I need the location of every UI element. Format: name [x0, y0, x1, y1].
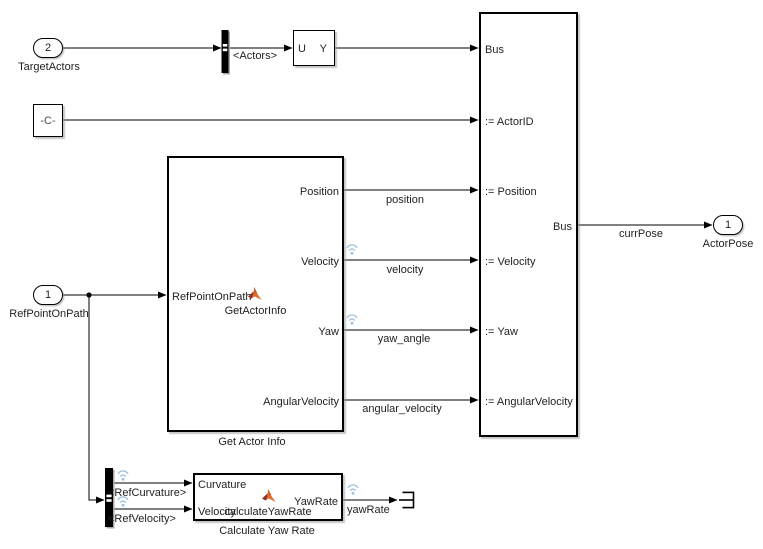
bus-selector-actors[interactable]	[222, 30, 231, 75]
calcyawrate-function-name: calculateYawRate	[195, 506, 341, 518]
busassign-port-velocity: := Velocity	[485, 256, 535, 268]
busassign-port-angularvelocity: := AngularVelocity	[485, 396, 573, 408]
calculate-yaw-rate-caption[interactable]: Calculate Yaw Rate	[219, 526, 315, 537]
getactorinfo-function-name: GetActorInfo	[169, 305, 342, 317]
inport-refpointonpath[interactable]: 1	[33, 285, 63, 305]
matlab-icon	[248, 286, 265, 301]
conversion-out-label: Y	[320, 43, 327, 55]
signal-label-currpose[interactable]: currPose	[619, 229, 663, 240]
get-actor-info-caption[interactable]: Get Actor Info	[218, 437, 285, 448]
terminator-block[interactable]	[399, 492, 414, 509]
calculate-yaw-rate-block[interactable]: Curvature Velocity YawRate calculateYawR…	[193, 473, 343, 521]
signal-label-angular-velocity[interactable]: angular_velocity	[362, 404, 442, 415]
busassign-port-bus: Bus	[485, 44, 504, 56]
constant-value: -C-	[40, 115, 55, 127]
inport-refpointonpath-label[interactable]: RefPointOnPath	[9, 309, 89, 320]
busassign-port-position: := Position	[485, 186, 537, 198]
getactorinfo-port-position: Position	[300, 186, 339, 198]
inport-targetactors-number: 2	[45, 42, 51, 54]
getactorinfo-port-refpoint: RefPointOnPath	[172, 291, 252, 303]
constant-block[interactable]: -C-	[33, 104, 63, 137]
signal-label-velocity[interactable]: velocity	[387, 265, 424, 276]
get-actor-info-block[interactable]: RefPointOnPath Position Velocity Yaw Ang…	[167, 156, 344, 432]
getactorinfo-port-velocity: Velocity	[301, 256, 339, 268]
bus-tag-refcurvature: <RefCurvature>	[108, 488, 186, 499]
outport-actorpose-number: 1	[725, 219, 731, 231]
outport-actorpose[interactable]: 1	[713, 215, 743, 235]
getactorinfo-port-angularvelocity: AngularVelocity	[263, 396, 339, 408]
outport-actorpose-label[interactable]: ActorPose	[703, 239, 754, 250]
busassign-port-out-bus: Bus	[553, 221, 572, 233]
logging-badge-velocity[interactable]	[347, 245, 357, 255]
bus-tag-refvelocity: <RefVelocity>	[108, 514, 176, 525]
logging-badge-yawrate[interactable]	[348, 485, 358, 495]
bus-tag-actors: <Actors>	[233, 51, 277, 62]
bus-assignment-block[interactable]: Bus := ActorID := Position := Velocity :…	[479, 12, 578, 437]
logging-badge-yaw[interactable]	[347, 315, 357, 325]
simulink-diagram: 2 TargetActors <Actors> U Y -C- Bus := A…	[0, 0, 763, 549]
inport-refpointonpath-number: 1	[45, 289, 51, 301]
wire-layer	[0, 0, 763, 549]
inport-targetactors-label[interactable]: TargetActors	[18, 62, 80, 73]
signal-label-yawrate[interactable]: yawRate	[347, 505, 390, 516]
getactorinfo-port-yaw: Yaw	[318, 326, 339, 338]
conversion-in-label: U	[298, 43, 306, 55]
wire-refpoint-branch[interactable]	[89, 295, 104, 500]
signal-label-position[interactable]: position	[386, 195, 424, 206]
busassign-port-yaw: := Yaw	[485, 326, 518, 338]
busassign-port-actorid: := ActorID	[485, 116, 534, 128]
matlab-icon	[262, 488, 279, 503]
signal-label-yaw-angle[interactable]: yaw_angle	[378, 334, 431, 345]
logging-badge-refcurvature[interactable]	[118, 471, 128, 481]
signal-conversion-block[interactable]: U Y	[293, 30, 335, 66]
wire-junction-dot	[86, 292, 91, 297]
calcyawrate-port-curvature: Curvature	[198, 479, 246, 491]
inport-targetactors[interactable]: 2	[33, 38, 63, 58]
